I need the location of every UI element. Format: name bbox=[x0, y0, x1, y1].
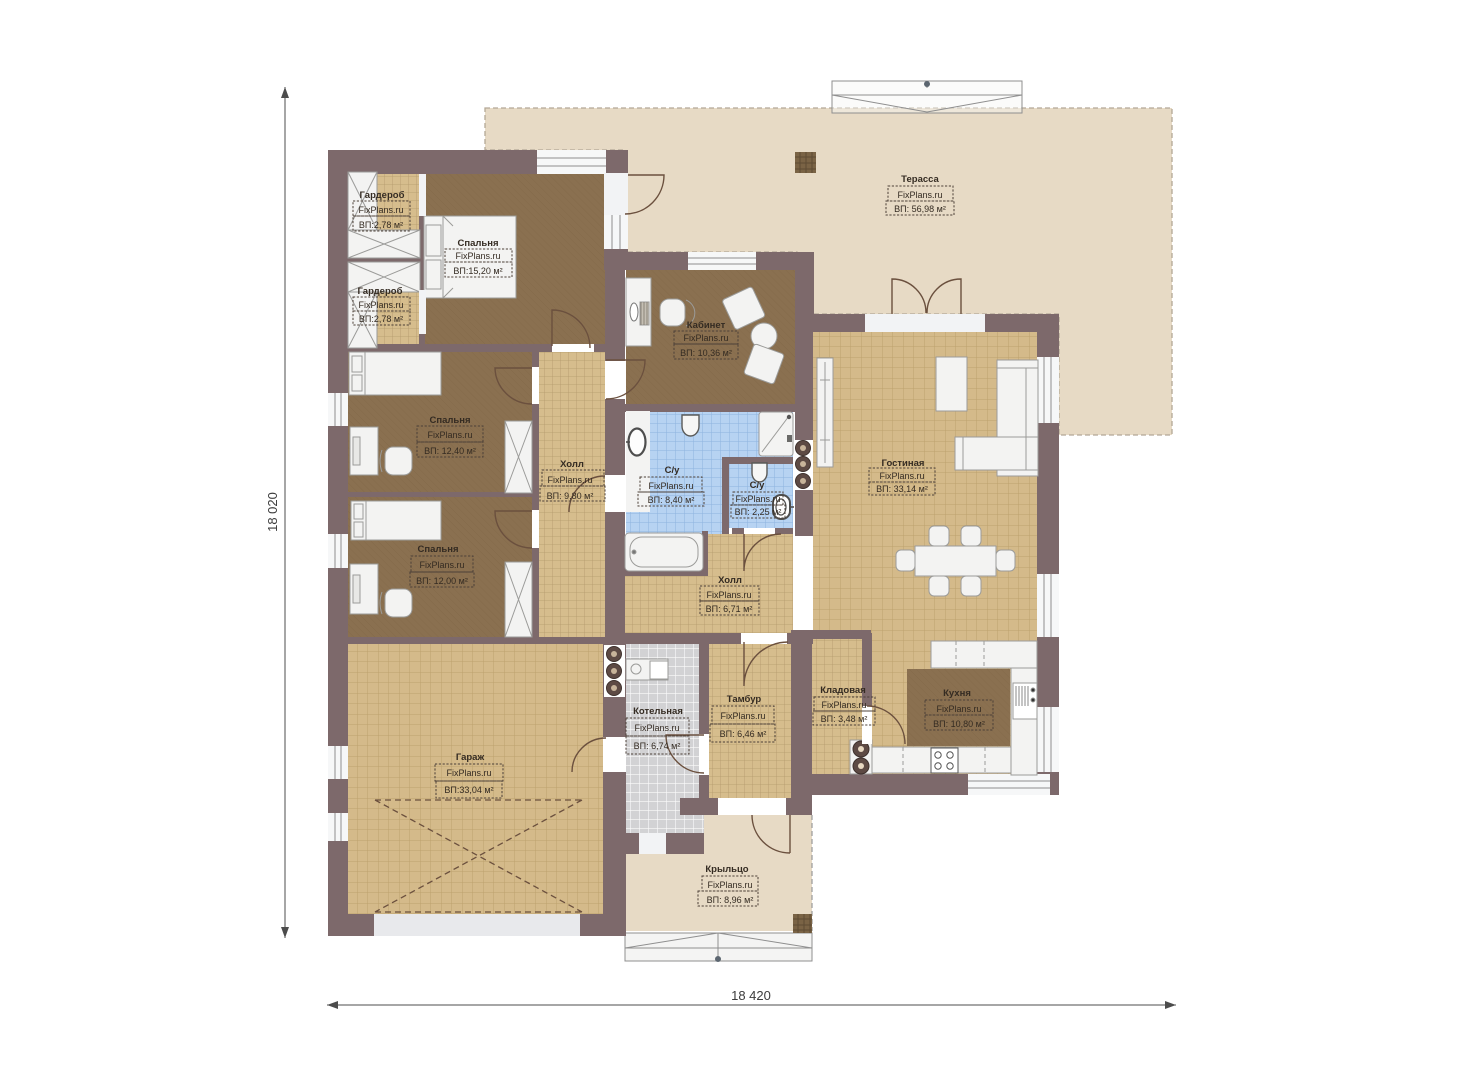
svg-text:FixPlans.ru: FixPlans.ru bbox=[547, 475, 592, 485]
svg-text:Гараж: Гараж bbox=[456, 752, 485, 763]
svg-text:Гардероб: Гардероб bbox=[358, 286, 403, 297]
svg-text:Котельная: Котельная bbox=[633, 706, 683, 717]
svg-text:FixPlans.ru: FixPlans.ru bbox=[720, 711, 765, 721]
svg-text:FixPlans.ru: FixPlans.ru bbox=[419, 560, 464, 570]
svg-text:С/у: С/у bbox=[750, 480, 766, 491]
svg-text:18 020: 18 020 bbox=[265, 492, 280, 532]
svg-text:Гардероб: Гардероб bbox=[360, 190, 405, 201]
svg-text:FixPlans.ru: FixPlans.ru bbox=[427, 430, 472, 440]
svg-text:Крыльцо: Крыльцо bbox=[705, 864, 748, 875]
svg-text:FixPlans.ru: FixPlans.ru bbox=[707, 880, 752, 890]
svg-text:FixPlans.ru: FixPlans.ru bbox=[455, 251, 500, 261]
svg-text:Кладовая: Кладовая bbox=[820, 685, 866, 696]
svg-text:Тамбур: Тамбур bbox=[727, 694, 762, 705]
svg-text:FixPlans.ru: FixPlans.ru bbox=[821, 700, 866, 710]
svg-text:Кабинет: Кабинет bbox=[687, 320, 726, 331]
svg-text:ВП: 2,25 м²: ВП: 2,25 м² bbox=[735, 507, 782, 517]
svg-text:ВП: 6,46 м²: ВП: 6,46 м² bbox=[720, 729, 767, 739]
svg-text:FixPlans.ru: FixPlans.ru bbox=[683, 333, 728, 343]
svg-text:Гостиная: Гостиная bbox=[882, 458, 925, 469]
svg-text:ВП:2,78 м²: ВП:2,78 м² bbox=[359, 220, 403, 230]
svg-text:FixPlans.ru: FixPlans.ru bbox=[936, 704, 981, 714]
svg-text:FixPlans.ru: FixPlans.ru bbox=[706, 590, 751, 600]
svg-text:ВП: 33,14 м²: ВП: 33,14 м² bbox=[876, 484, 928, 494]
svg-text:FixPlans.ru: FixPlans.ru bbox=[358, 300, 403, 310]
svg-text:ВП:15,20 м²: ВП:15,20 м² bbox=[453, 266, 502, 276]
svg-text:FixPlans.ru: FixPlans.ru bbox=[648, 481, 693, 491]
svg-text:ВП: 56,98 м²: ВП: 56,98 м² bbox=[894, 204, 946, 214]
svg-text:Терасса: Терасса bbox=[901, 174, 939, 185]
svg-text:FixPlans.ru: FixPlans.ru bbox=[358, 205, 403, 215]
svg-text:ВП:33,04 м²: ВП:33,04 м² bbox=[444, 785, 493, 795]
svg-text:FixPlans.ru: FixPlans.ru bbox=[897, 190, 942, 200]
svg-text:Спальня: Спальня bbox=[429, 415, 470, 426]
svg-text:18 420: 18 420 bbox=[731, 988, 771, 1003]
svg-text:ВП: 8,40 м²: ВП: 8,40 м² bbox=[648, 495, 695, 505]
svg-text:Холл: Холл bbox=[718, 575, 742, 586]
svg-text:ВП: 12,40 м²: ВП: 12,40 м² bbox=[424, 446, 476, 456]
svg-text:ВП: 3,48 м²: ВП: 3,48 м² bbox=[821, 714, 868, 724]
svg-text:Холл: Холл bbox=[560, 459, 584, 470]
svg-text:Кухня: Кухня bbox=[943, 688, 971, 699]
svg-text:Спальня: Спальня bbox=[457, 238, 498, 249]
svg-text:FixPlans.ru: FixPlans.ru bbox=[879, 471, 924, 481]
svg-text:ВП:2,78 м²: ВП:2,78 м² bbox=[359, 314, 403, 324]
svg-text:FixPlans.ru: FixPlans.ru bbox=[446, 768, 491, 778]
svg-text:ВП: 9,80 м²: ВП: 9,80 м² bbox=[547, 491, 594, 501]
svg-text:ВП: 10,36 м²: ВП: 10,36 м² bbox=[680, 348, 732, 358]
svg-text:ВП: 12,00 м²: ВП: 12,00 м² bbox=[416, 576, 468, 586]
svg-text:FixPlans.ru: FixPlans.ru bbox=[735, 494, 780, 504]
svg-text:FixPlans.ru: FixPlans.ru bbox=[634, 723, 679, 733]
svg-text:С/у: С/у bbox=[665, 465, 681, 476]
svg-text:ВП: 8,96 м²: ВП: 8,96 м² bbox=[707, 895, 754, 905]
svg-text:ВП: 6,71 м²: ВП: 6,71 м² bbox=[706, 604, 753, 614]
svg-text:ВП: 6,74 м²: ВП: 6,74 м² bbox=[634, 741, 681, 751]
svg-text:ВП: 10,80 м²: ВП: 10,80 м² bbox=[933, 719, 985, 729]
svg-text:Спальня: Спальня bbox=[417, 544, 458, 555]
